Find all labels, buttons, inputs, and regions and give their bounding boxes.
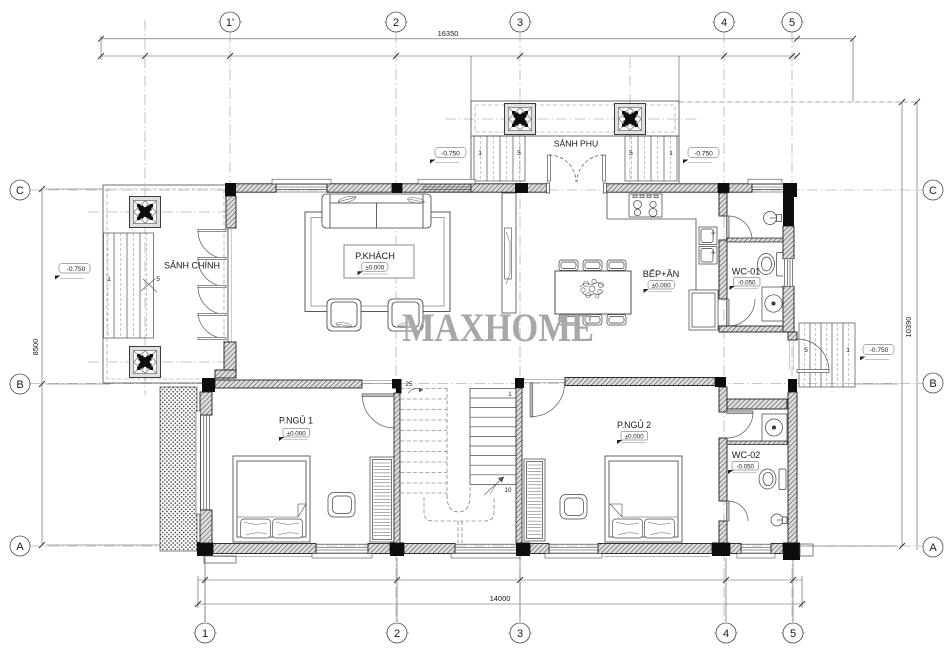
svg-text:5: 5 [804, 347, 808, 354]
svg-text:WC-02: WC-02 [732, 450, 761, 460]
svg-text:2: 2 [393, 17, 399, 29]
svg-text:10390: 10390 [904, 317, 913, 338]
svg-text:P.KHÁCH: P.KHÁCH [355, 251, 395, 261]
svg-text:-0.750: -0.750 [870, 347, 889, 354]
svg-text:A: A [929, 542, 937, 554]
svg-text:25: 25 [406, 381, 413, 388]
svg-text:±0.000: ±0.000 [365, 265, 384, 272]
svg-text:A: A [16, 541, 24, 553]
svg-text:-0.750: -0.750 [441, 151, 460, 158]
svg-text:±0.000: ±0.000 [625, 433, 644, 440]
svg-text:SẢNH PHỤ: SẢNH PHỤ [554, 138, 598, 149]
svg-text:B: B [16, 379, 23, 391]
svg-text:5: 5 [517, 150, 521, 157]
svg-text:16350: 16350 [438, 29, 459, 38]
svg-text:5: 5 [790, 628, 796, 640]
svg-text:1: 1 [669, 150, 673, 157]
svg-text:-0.750: -0.750 [694, 151, 713, 158]
svg-text:1: 1 [107, 276, 111, 283]
svg-text:MAXHOME: MAXHOME [402, 305, 594, 350]
svg-text:10: 10 [505, 487, 512, 494]
svg-text:1: 1 [202, 628, 208, 640]
svg-text:C: C [929, 185, 937, 197]
svg-text:1: 1 [478, 150, 482, 157]
svg-text:4: 4 [721, 17, 727, 29]
svg-text:1': 1' [226, 17, 234, 29]
svg-text:1: 1 [846, 347, 850, 354]
svg-text:2: 2 [394, 628, 400, 640]
svg-text:1: 1 [508, 391, 512, 398]
svg-text:-0.050: -0.050 [736, 463, 754, 470]
svg-text:-0.050: -0.050 [738, 279, 756, 286]
svg-text:14000: 14000 [490, 594, 511, 603]
svg-text:BẾP+ĂN: BẾP+ĂN [643, 269, 680, 279]
svg-text:5: 5 [156, 276, 160, 283]
svg-text:5: 5 [789, 17, 795, 29]
svg-text:±0.000: ±0.000 [287, 430, 306, 437]
svg-text:SẢNH CHÍNH: SẢNH CHÍNH [164, 260, 220, 271]
svg-text:P.NGỦ 2: P.NGỦ 2 [617, 419, 651, 430]
svg-text:B: B [929, 378, 936, 390]
svg-text:-0.750: -0.750 [67, 266, 86, 273]
svg-text:P.NGỦ 1: P.NGỦ 1 [279, 415, 313, 426]
svg-text:8500: 8500 [31, 339, 40, 356]
svg-text:±0.000: ±0.000 [652, 282, 671, 289]
svg-text:3: 3 [517, 628, 523, 640]
svg-text:C: C [16, 185, 24, 197]
svg-text:3: 3 [517, 17, 523, 29]
svg-text:5: 5 [629, 150, 633, 157]
svg-text:4: 4 [723, 628, 729, 640]
svg-text:WC-01: WC-01 [732, 267, 761, 277]
